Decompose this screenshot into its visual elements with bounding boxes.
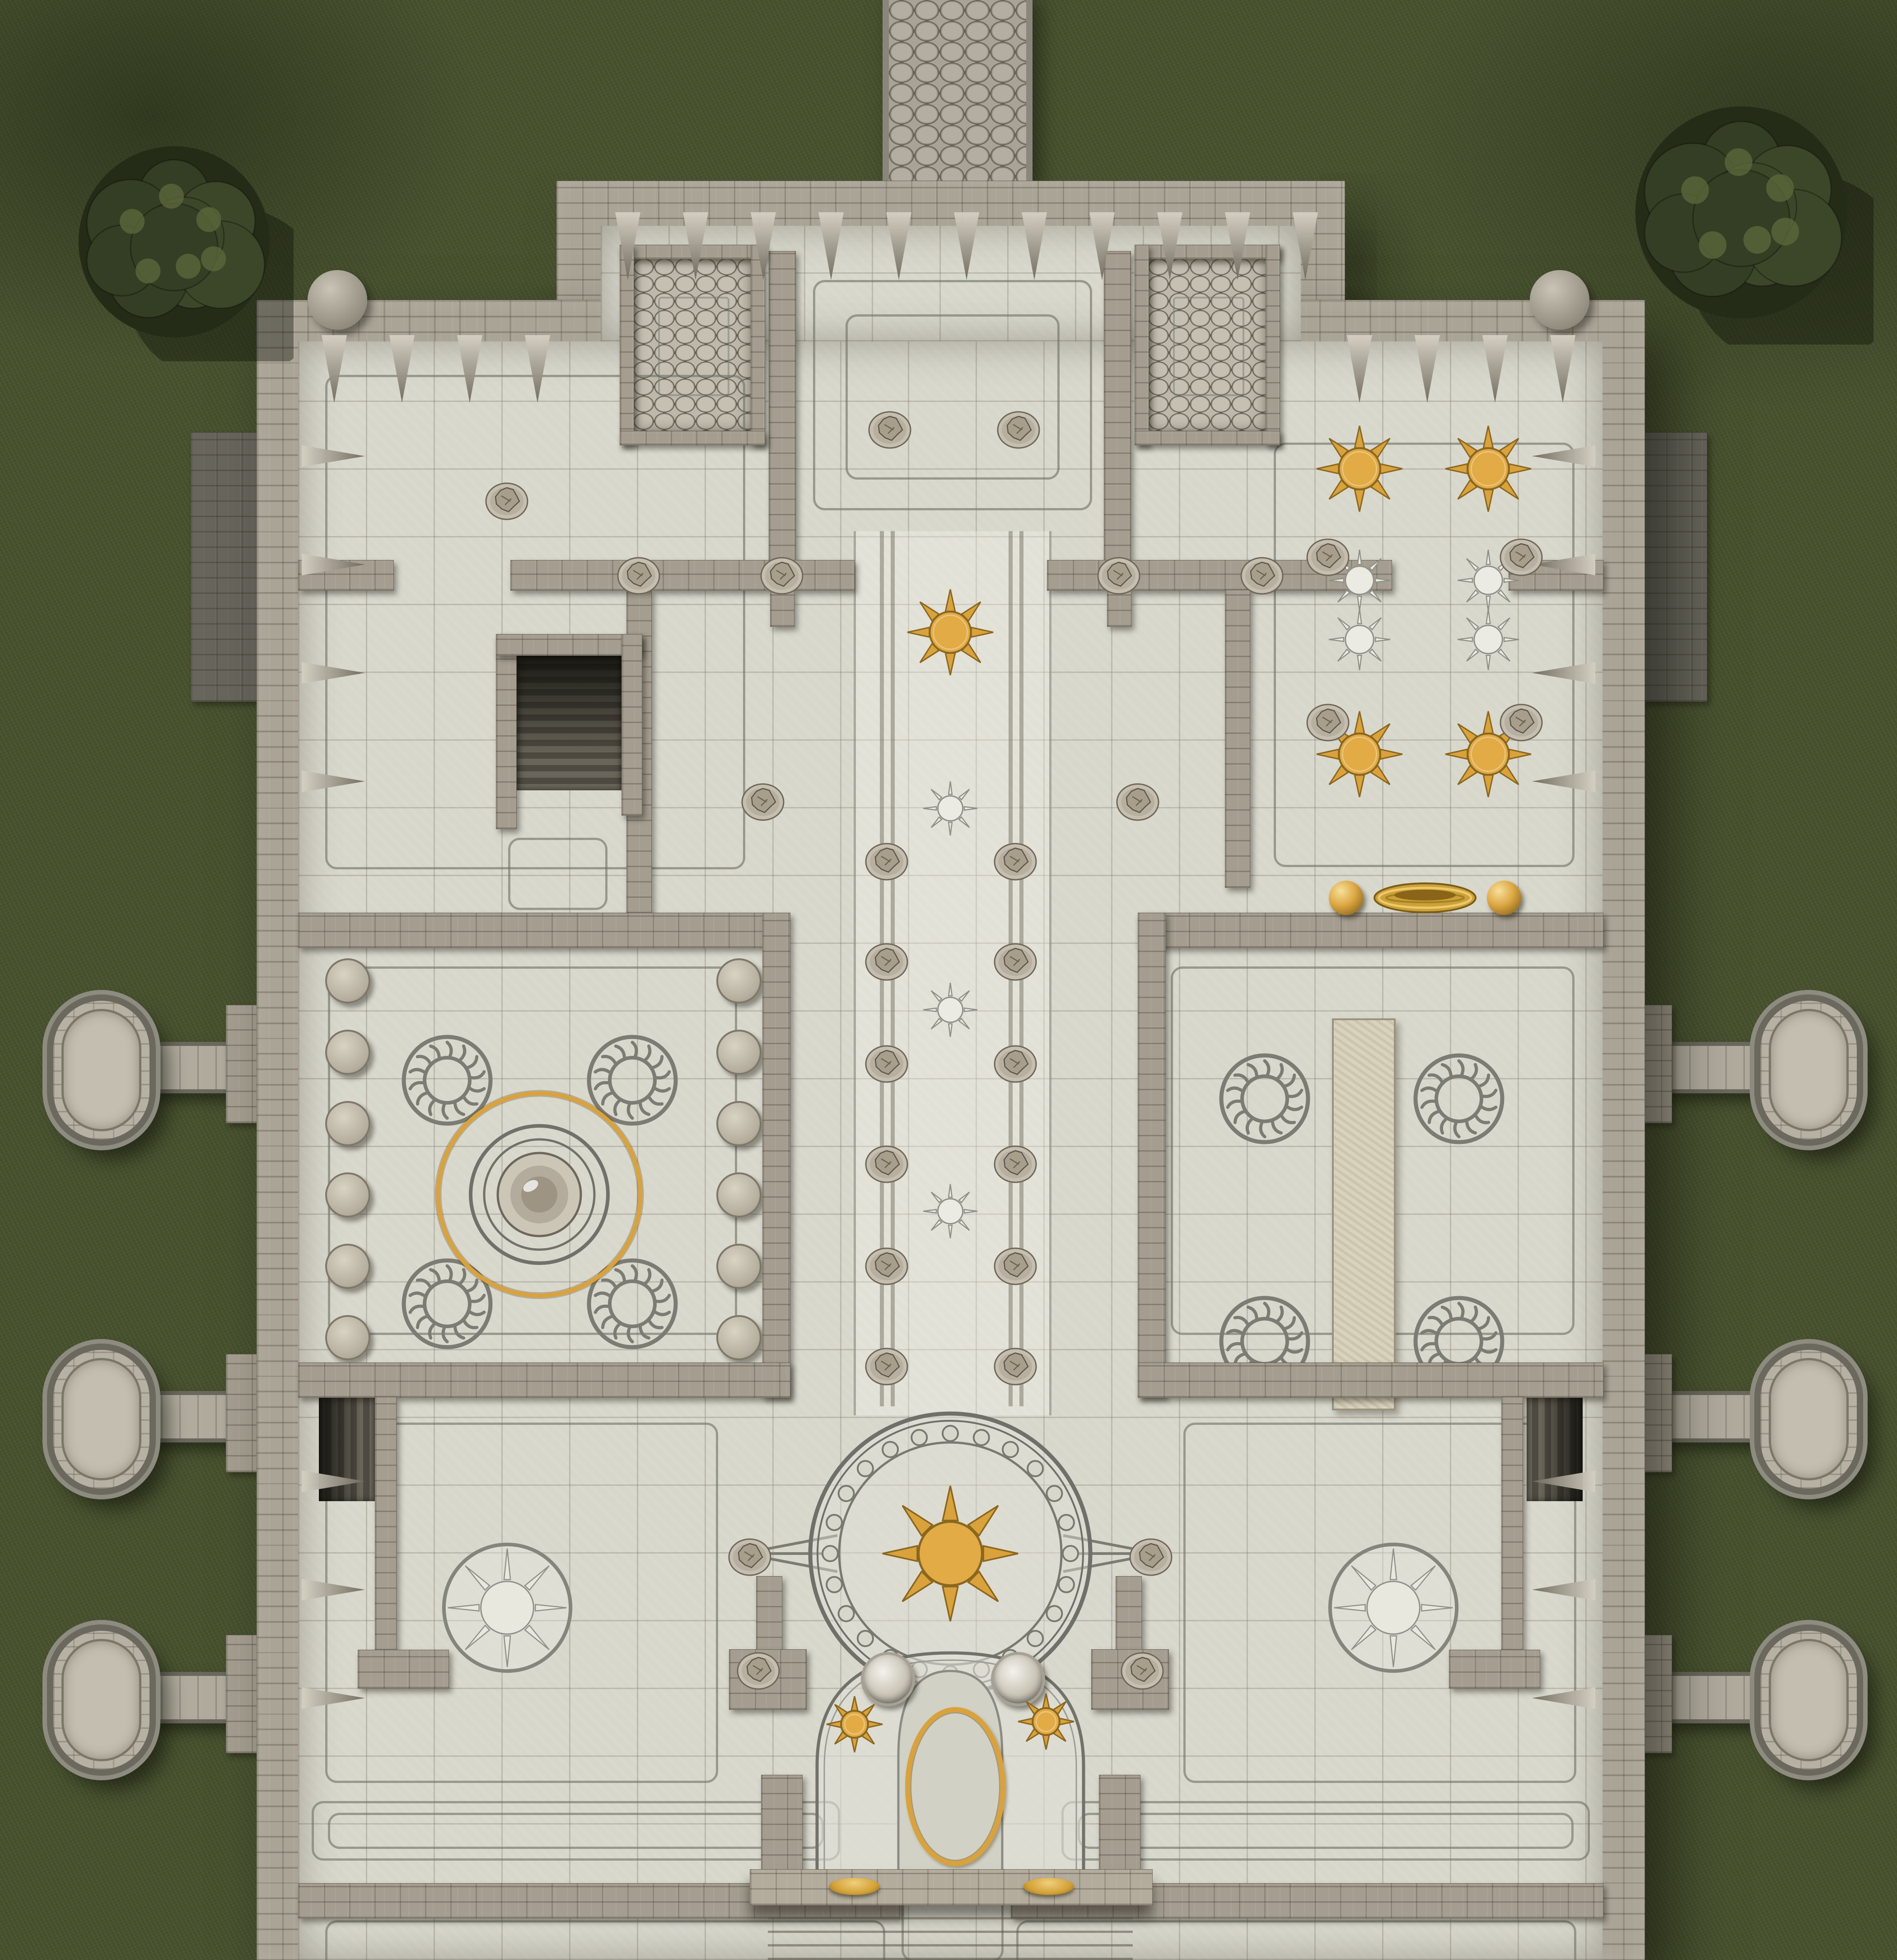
broken-pillar xyxy=(1119,1647,1166,1694)
gold-sun-icon xyxy=(1444,424,1533,513)
interior-wall xyxy=(761,1775,803,1871)
broken-pillar xyxy=(992,837,1039,884)
colonnade-disc xyxy=(325,1101,370,1146)
broken-pillar xyxy=(866,406,913,453)
gold-sun-icon xyxy=(1016,1692,1076,1751)
wall-knob xyxy=(308,270,367,330)
interior-wall xyxy=(1135,245,1149,445)
west-dais-inner-outline xyxy=(328,1813,824,1849)
broken-pillar xyxy=(1114,778,1161,825)
white-sun-icon xyxy=(921,1182,979,1240)
interior-wall xyxy=(1138,913,1603,948)
colonnade-disc xyxy=(716,1030,762,1075)
interior-wall xyxy=(1104,251,1131,577)
rosette-medallion xyxy=(1413,1053,1505,1145)
interior-wall xyxy=(620,431,765,445)
stone-slab xyxy=(1332,1018,1396,1410)
colonnade-disc xyxy=(716,1172,762,1218)
broken-pillar xyxy=(863,1140,910,1187)
sanctuary-steps xyxy=(768,1906,1133,1960)
gold-orb xyxy=(1487,881,1521,915)
interior-wall xyxy=(298,1363,790,1398)
gold-plate xyxy=(1023,1878,1074,1895)
white-sun-icon xyxy=(1456,607,1521,672)
east-dais-inner-outline xyxy=(1078,1813,1574,1849)
interior-wall xyxy=(1449,1650,1540,1689)
interior-wall xyxy=(298,913,763,948)
broken-pillar xyxy=(1498,698,1545,745)
temple-battlemap-canvas xyxy=(0,0,1897,1960)
broken-pillar xyxy=(483,477,530,524)
colonnade-disc xyxy=(716,1315,762,1360)
broken-pillar xyxy=(863,1040,910,1087)
side-annex xyxy=(1640,432,1707,702)
broken-pillar xyxy=(1498,533,1545,580)
broken-pillar xyxy=(992,938,1039,985)
side-chapel xyxy=(1754,994,1863,1146)
broken-pillar xyxy=(1095,551,1142,598)
gold-sun-icon xyxy=(1315,424,1404,513)
gold-sun-icon xyxy=(906,588,995,677)
interior-wall xyxy=(1138,1363,1603,1398)
gold-orb xyxy=(1329,881,1363,915)
wall-knob xyxy=(1530,270,1589,330)
altar-ledge xyxy=(750,1869,1153,1905)
northwest-floor-plaque-outline xyxy=(508,838,607,910)
gold-basin xyxy=(1373,882,1477,914)
broken-pillar xyxy=(726,1533,773,1580)
interior-wall xyxy=(756,1576,782,1654)
interior-wall xyxy=(762,913,790,1398)
interior-wall xyxy=(1116,1576,1142,1654)
interior-wall xyxy=(358,1650,449,1689)
broken-pillar xyxy=(992,1040,1039,1087)
broken-pillar xyxy=(758,551,805,598)
broken-pillar xyxy=(992,1342,1039,1389)
colonnade-disc xyxy=(716,958,762,1003)
side-chapel xyxy=(47,994,156,1146)
broken-pillar xyxy=(735,1647,782,1694)
side-chapel xyxy=(47,1624,156,1776)
broken-pillar xyxy=(992,1140,1039,1187)
sun-circle-emblem xyxy=(1325,1540,1462,1676)
tree xyxy=(1609,80,1874,345)
interior-wall xyxy=(1501,1397,1523,1651)
interior-wall xyxy=(1135,431,1280,445)
broken-pillar xyxy=(615,551,662,598)
interior-wall xyxy=(621,634,642,816)
colonnade-disc xyxy=(325,1030,370,1075)
colonnade-disc xyxy=(325,1172,370,1218)
gold-sun-icon xyxy=(825,1694,884,1754)
interior-wall xyxy=(1138,913,1166,1398)
broken-pillar xyxy=(1127,1533,1174,1580)
broken-pillar xyxy=(863,1242,910,1289)
stairs-down xyxy=(516,655,621,790)
colonnade-disc xyxy=(325,1244,370,1289)
side-annex xyxy=(191,432,257,702)
side-chapel xyxy=(47,1344,156,1495)
broken-pillar xyxy=(863,837,910,884)
side-chapel xyxy=(1754,1624,1863,1776)
northwest-hall-outline xyxy=(325,375,745,869)
apse-gold-oval xyxy=(905,1707,1005,1866)
broken-pillar xyxy=(863,938,910,985)
broken-pillar xyxy=(1304,533,1351,580)
colonnade-disc xyxy=(716,1101,762,1146)
interior-wall xyxy=(375,1397,397,1651)
approach-path xyxy=(883,0,1033,194)
tree xyxy=(55,122,294,361)
colonnade-disc xyxy=(716,1244,762,1289)
interior-wall xyxy=(1099,1775,1140,1871)
interior-wall xyxy=(496,634,517,829)
cobble-alcove-outline xyxy=(1173,297,1244,396)
broken-pillar xyxy=(1238,551,1285,598)
entrance-hall-inner-outline xyxy=(846,314,1060,480)
broken-pillar xyxy=(1304,698,1351,745)
colonnade-disc xyxy=(325,1315,370,1360)
white-sun-icon xyxy=(921,981,979,1039)
gold-plate xyxy=(829,1878,880,1895)
white-sun-icon xyxy=(921,779,979,837)
broken-pillar xyxy=(863,1342,910,1389)
side-chapel xyxy=(1754,1344,1863,1495)
rosette-medallion xyxy=(1219,1053,1311,1145)
broken-pillar xyxy=(992,1242,1039,1289)
broken-pillar xyxy=(739,778,786,825)
interior-wall xyxy=(769,251,796,577)
interior-wall xyxy=(1135,245,1280,259)
colonnade-disc xyxy=(325,958,370,1003)
interior-wall xyxy=(1266,245,1280,445)
broken-pillar xyxy=(995,406,1042,453)
sun-circle-emblem xyxy=(439,1540,575,1676)
white-sun-icon xyxy=(1327,607,1392,672)
interior-wall xyxy=(1225,590,1250,888)
holy-water-font xyxy=(433,1088,645,1301)
interior-wall xyxy=(496,634,642,656)
